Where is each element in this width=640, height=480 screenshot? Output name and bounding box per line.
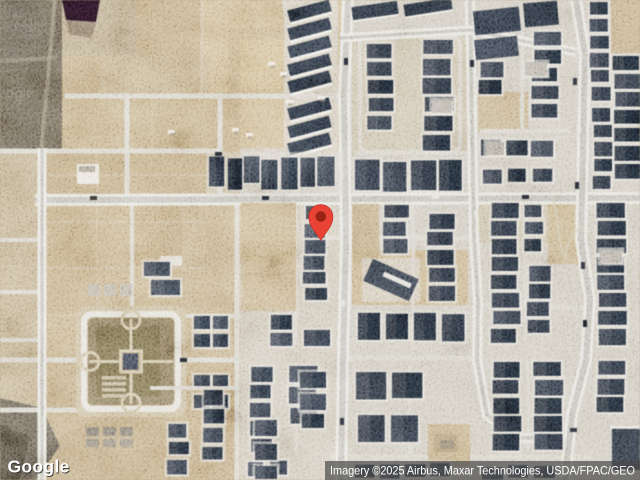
svg-text:Google: Google (8, 457, 70, 477)
svg-text:Imagery ©2025 Airbus, Maxar Te: Imagery ©2025 Airbus, Maxar Technologies… (330, 464, 635, 478)
